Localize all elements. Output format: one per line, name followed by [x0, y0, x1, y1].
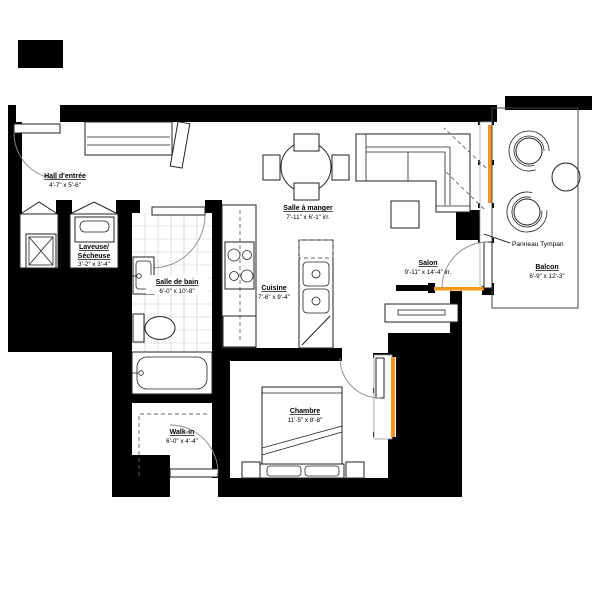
balcony-chair-2-back-inner	[512, 197, 542, 227]
dining-chair-top	[294, 134, 319, 151]
label-laundry-name1: Laveuse/	[79, 244, 109, 251]
floor-plan-page: Hall d'entrée 4'-7" x 5'-6" Laveuse/ Séc…	[0, 0, 600, 600]
label-laundry-dim: 3'-2" x 3'-4"	[78, 261, 110, 268]
entry-closet-door-leaf	[170, 122, 190, 168]
walkin-door-leaf	[170, 469, 218, 477]
label-kitchen-name: Cuisine	[261, 285, 286, 292]
wall-detached-top-left	[18, 40, 63, 68]
label-laundry-name2: Sécheuse	[78, 253, 111, 260]
window-tick-horiz-left	[428, 283, 435, 293]
dining-chair-left	[263, 155, 280, 180]
ottoman	[391, 201, 419, 228]
label-bath-name: Salle de bain	[156, 279, 199, 286]
kitchen-island	[299, 240, 333, 348]
toilet-bowl	[145, 317, 175, 340]
label-bath-dim: 6'-0" x 10'-8"	[159, 288, 194, 295]
label-bedroom-dim: 11'-5" x 8'-8"	[288, 417, 323, 424]
label-hall-dim: 4'-7" x 5'-6"	[49, 182, 81, 189]
dining-chair-bottom	[294, 183, 319, 200]
nightstand-left	[242, 462, 260, 478]
entry-closet	[85, 122, 172, 155]
sofa-outline	[356, 134, 470, 212]
wall-left-upper	[8, 122, 22, 213]
nightstand-right	[346, 462, 364, 478]
wall-salon-south	[396, 285, 432, 291]
balcony-table	[552, 163, 580, 191]
label-balcony-dim: 6'-9" x 12'-3"	[529, 273, 564, 280]
bedroom-door-leaf	[376, 358, 384, 398]
label-hall-name: Hall d'entrée	[44, 173, 86, 180]
balcony-chair-2-back-outer	[507, 192, 547, 232]
wall-top-main	[60, 105, 497, 122]
label-balcony-name: Balcon	[535, 264, 558, 271]
label-kitchen-dim: 7'-6" x 9'-4"	[258, 294, 290, 301]
dining-area	[263, 134, 349, 200]
label-salon-name: Salon	[418, 260, 437, 267]
kitchen-counter-left	[222, 205, 256, 348]
balcony-chair-2	[514, 199, 540, 225]
label-salon-dim: 9'-11" x 14'-4" irr.	[404, 269, 451, 276]
dining-chair-right	[332, 155, 349, 180]
label-bedroom-name: Chambre	[290, 408, 320, 415]
entry-door-leaf	[14, 124, 60, 133]
floor-plan-drawing: Hall d'entrée 4'-7" x 5'-6" Laveuse/ Séc…	[0, 0, 600, 600]
label-panneau: Panneau Tympan	[512, 241, 564, 248]
bed-mattress	[262, 387, 342, 464]
label-dining-dim: 7'-11" x 6'-1" irr.	[286, 214, 330, 221]
kitchen	[222, 205, 333, 348]
wall-kitchen-bedroom	[200, 348, 342, 361]
label-walkin-dim: 6'-0" x 4'-4"	[166, 438, 198, 445]
label-walkin-name: Walk-in	[170, 429, 195, 436]
balcony-glazing-upper	[488, 125, 492, 203]
wall-bath-kitchen	[212, 205, 222, 348]
balcony-chair-1-back-inner	[514, 136, 544, 166]
tv-console	[385, 304, 458, 322]
balcony-chair-1	[516, 138, 542, 164]
walkin-door-opening	[170, 478, 218, 497]
wall-se-mass	[396, 333, 462, 497]
balcony-door-leaf	[484, 242, 492, 288]
balcony-chair-1-back-outer	[509, 131, 549, 171]
bathtub	[132, 352, 212, 394]
wall-below-bedroom-window	[388, 437, 396, 480]
label-dining-name: Salle à manger	[283, 205, 333, 212]
wall-bottom-left-chunk	[112, 455, 170, 497]
wall-top-stub	[8, 105, 16, 122]
toilet-tank	[133, 314, 144, 342]
wall-bedroom-west	[212, 348, 230, 478]
bath-door-leaf	[152, 207, 205, 215]
bedroom-glazing	[391, 357, 395, 437]
salon-south-glazing	[434, 287, 484, 291]
